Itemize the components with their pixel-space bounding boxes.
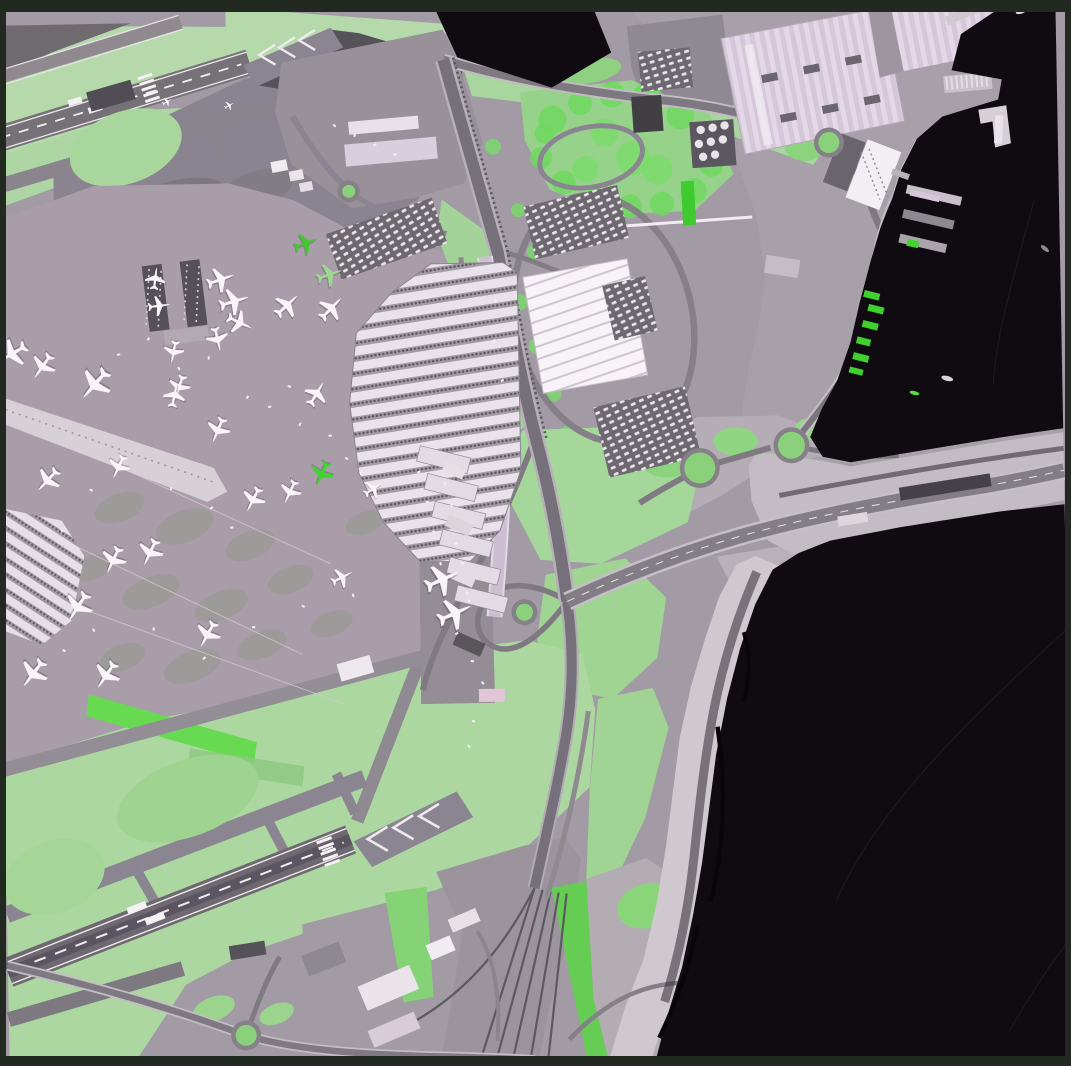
ground-vehicle: [208, 356, 210, 359]
ground-vehicle: [452, 612, 454, 615]
moored-ship: [994, 115, 1003, 143]
dark-building: [631, 95, 663, 133]
image-footprint: [0, 0, 1071, 1066]
ground-vehicle: [329, 435, 332, 437]
ground-vehicle: [393, 153, 396, 155]
ground-vehicle: [444, 482, 446, 485]
ground-vehicle: [426, 501, 429, 503]
ground-vehicle: [252, 626, 255, 628]
satellite-image: [0, 0, 1071, 1066]
parking-lot: [638, 47, 693, 91]
pink-building: [479, 689, 505, 702]
screenshot-canvas: [0, 0, 1071, 1066]
ground-vehicle: [472, 720, 475, 722]
vivid-turf-field: [681, 181, 696, 226]
